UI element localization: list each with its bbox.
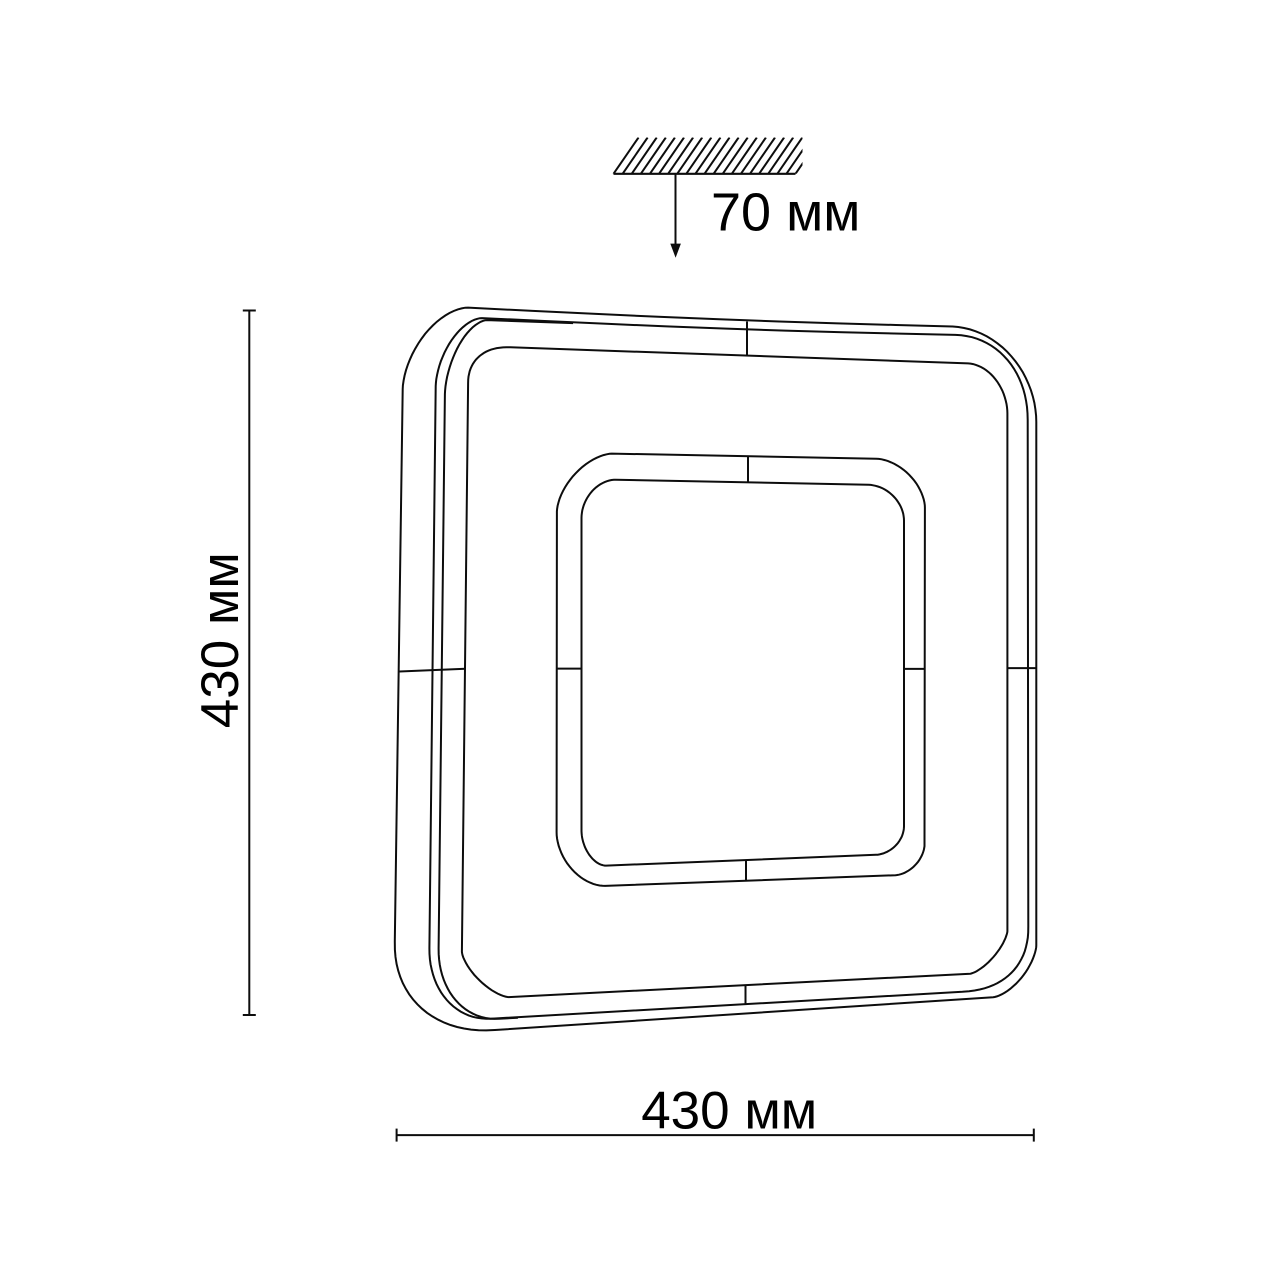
svg-text:430 мм: 430 мм (641, 1082, 817, 1141)
svg-text:70 мм: 70 мм (711, 183, 860, 243)
svg-text:430 мм: 430 мм (191, 552, 250, 728)
